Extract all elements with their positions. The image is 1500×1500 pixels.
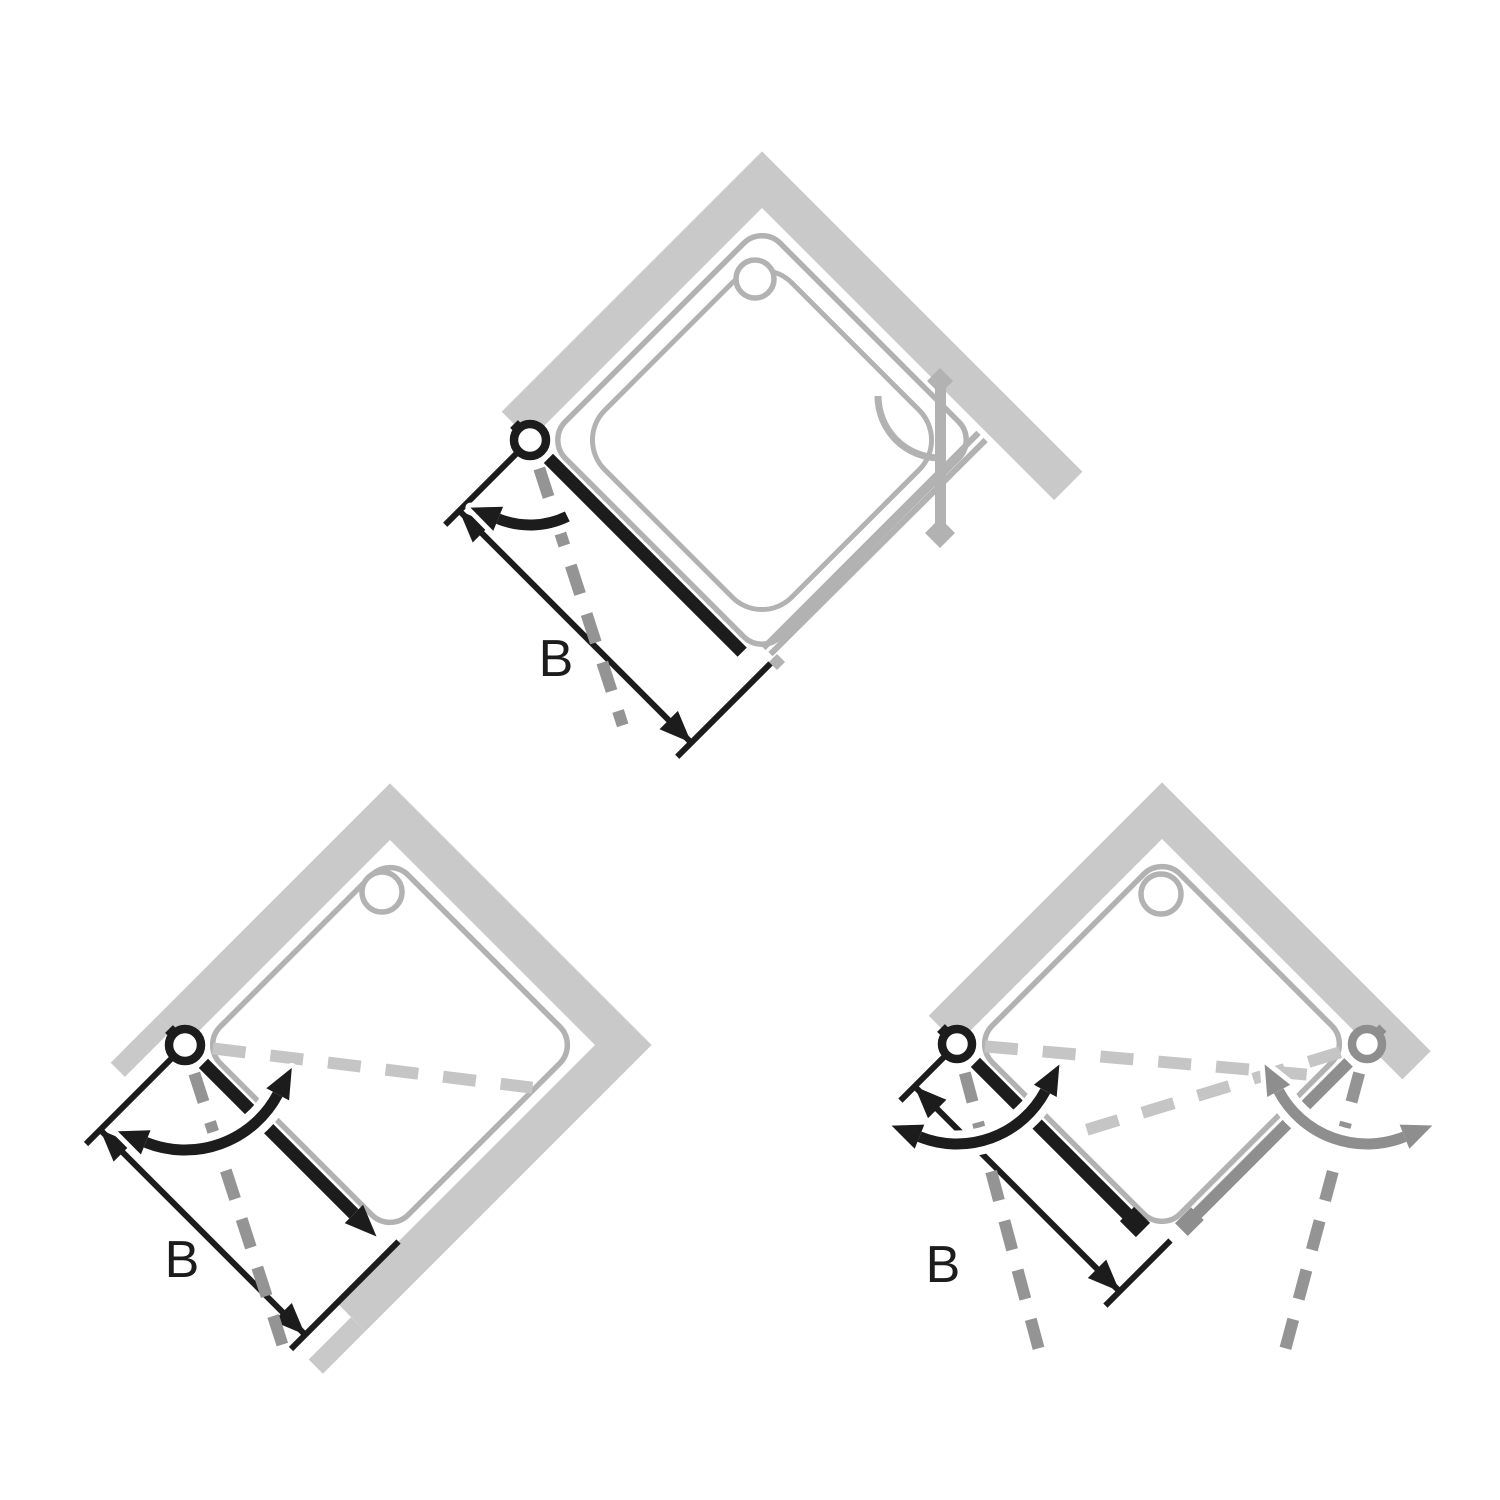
dimension-label: B (926, 1236, 961, 1294)
dimension-label: B (539, 630, 574, 688)
dimension-label: B (165, 1231, 200, 1289)
left-door-end-cap (1127, 1214, 1143, 1230)
support-post (935, 379, 946, 529)
pivot-hinge-icon (942, 1029, 972, 1059)
pivot-hinge-icon (514, 424, 546, 456)
shower-enclosure-diagrams: B B (0, 0, 1500, 1500)
shower-tray-icon (202, 857, 578, 1233)
dimension-tick-end (1105, 1241, 1170, 1306)
support-post-base-pad (925, 518, 955, 548)
diagram-pendulum-door: B (86, 783, 652, 1373)
drain-icon (736, 260, 774, 298)
diagram-canvas: B B (0, 0, 1500, 1500)
right-door-end-cap (1181, 1214, 1197, 1230)
pivot-hinge-gray-icon (1352, 1029, 1382, 1059)
side-panel-end-cap (769, 654, 785, 670)
diagram-double-pendulum-doors: B (892, 782, 1433, 1358)
drain-icon (1141, 874, 1181, 914)
pivot-hinge-icon (169, 1029, 201, 1061)
drain-icon (362, 872, 402, 912)
diagram-pivot-door-side-panel: B (445, 151, 1082, 756)
